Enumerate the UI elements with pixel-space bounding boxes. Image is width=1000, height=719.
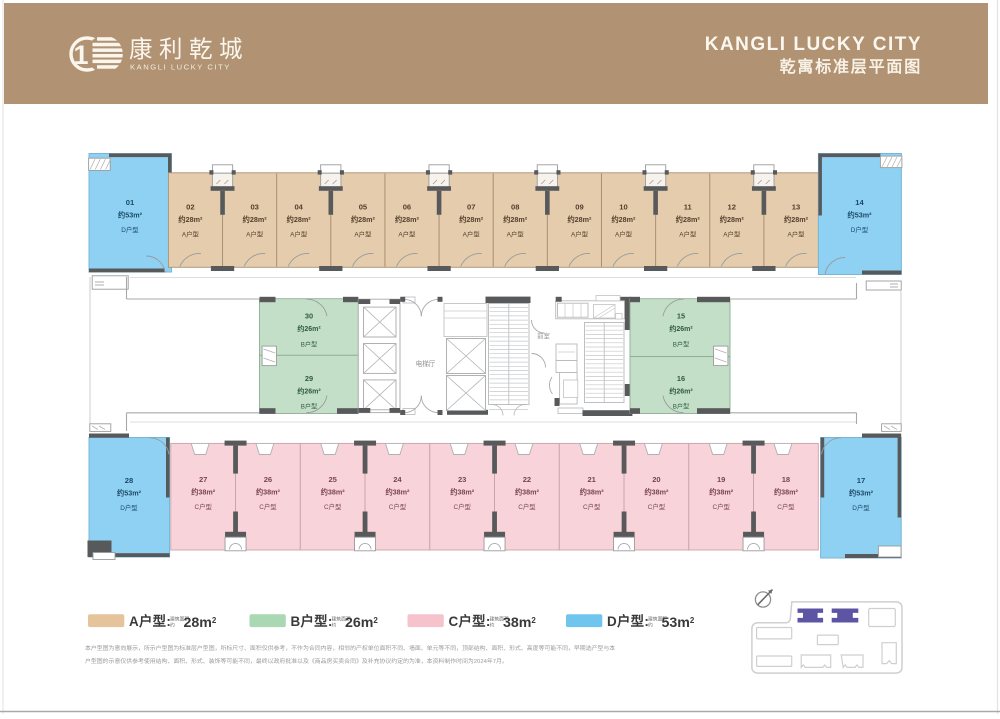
svg-text:D户型: D户型: [120, 503, 138, 512]
svg-text:06: 06: [403, 203, 411, 212]
svg-text:B户型: B户型: [673, 403, 690, 411]
svg-text:约38m²: 约38m²: [515, 488, 540, 497]
svg-text:约38m²: 约38m²: [256, 488, 281, 497]
svg-text:23: 23: [458, 475, 466, 484]
svg-text:约38m²: 约38m²: [385, 488, 410, 497]
svg-text:16: 16: [677, 374, 685, 383]
svg-text:26m2: 26m2: [345, 615, 378, 631]
svg-text:户型图的示意仅供参考使用结构、面积、形式、装饰等可能不同，最: 户型图的示意仅供参考使用结构、面积、形式、装饰等可能不同，最终以政府批准以及《商…: [85, 657, 508, 665]
svg-text:A户型: A户型: [246, 230, 264, 239]
svg-text:08: 08: [511, 203, 519, 212]
svg-text:约53m²: 约53m²: [117, 489, 142, 498]
svg-text:约38m²: 约38m²: [321, 488, 346, 497]
svg-text:13: 13: [792, 203, 800, 212]
svg-text:约38m²: 约38m²: [774, 488, 799, 497]
svg-text:15: 15: [677, 312, 685, 321]
svg-text:A户型: A户型: [507, 230, 525, 239]
svg-text:A户型: A户型: [571, 230, 589, 239]
svg-text:C户型: C户型: [389, 502, 407, 511]
svg-text:D户型: D户型: [852, 503, 870, 512]
svg-text:约28m²: 约28m²: [611, 215, 636, 224]
svg-text:19: 19: [717, 475, 725, 484]
svg-text:22: 22: [523, 475, 531, 484]
svg-text:A户型: A户型: [290, 230, 308, 239]
svg-text:04: 04: [294, 203, 303, 212]
svg-text:D户型:: D户型:: [607, 613, 649, 629]
svg-text:康利乾城: 康利乾城: [129, 36, 249, 62]
svg-text:约53m²: 约53m²: [118, 211, 143, 220]
svg-text:A户型:: A户型:: [129, 613, 171, 629]
svg-text:约28m²: 约28m²: [243, 215, 268, 224]
svg-text:25: 25: [328, 475, 337, 484]
svg-text:B户型: B户型: [673, 341, 690, 349]
svg-text:约38m²: 约38m²: [450, 488, 475, 497]
svg-text:约: 约: [170, 622, 175, 629]
svg-text:约38m²: 约38m²: [580, 488, 605, 497]
svg-text:C户型:: C户型:: [449, 613, 491, 629]
svg-text:KANGLI LUCKY CITY: KANGLI LUCKY CITY: [705, 34, 922, 55]
svg-text:B户型: B户型: [301, 403, 318, 411]
svg-text:A户型: A户型: [679, 230, 697, 239]
svg-text:C户型: C户型: [777, 502, 795, 511]
svg-text:乾寓标准层平面图: 乾寓标准层平面图: [780, 57, 922, 76]
svg-text:53m2: 53m2: [662, 615, 695, 631]
svg-text:C户型: C户型: [259, 502, 277, 511]
svg-text:约38m²: 约38m²: [644, 488, 669, 497]
svg-text:17: 17: [857, 476, 865, 485]
svg-text:27: 27: [199, 475, 207, 484]
svg-text:约: 约: [332, 622, 337, 629]
svg-text:约28m²: 约28m²: [178, 215, 203, 224]
svg-text:D户型: D户型: [121, 225, 139, 234]
svg-text:约38m²: 约38m²: [191, 488, 216, 497]
svg-text:A户型: A户型: [615, 230, 633, 239]
svg-text:约28m²: 约28m²: [567, 215, 592, 224]
svg-text:21: 21: [587, 475, 596, 484]
svg-text:约28m²: 约28m²: [287, 215, 312, 224]
svg-text:10: 10: [619, 203, 627, 212]
svg-text:C户型: C户型: [453, 502, 471, 511]
svg-text:C户型: C户型: [518, 502, 536, 511]
svg-text:28: 28: [125, 476, 133, 485]
svg-text:01: 01: [126, 198, 135, 207]
svg-text:24: 24: [393, 475, 402, 484]
svg-text:KANGLI LUCKY CITY: KANGLI LUCKY CITY: [130, 63, 231, 72]
svg-text:A户型: A户型: [354, 230, 372, 239]
svg-text:约38m²: 约38m²: [709, 488, 734, 497]
svg-text:B户型: B户型: [301, 341, 318, 349]
svg-text:A户型: A户型: [787, 230, 805, 239]
svg-text:电梯厅: 电梯厅: [416, 359, 436, 368]
svg-text:约26m²: 约26m²: [297, 324, 321, 333]
svg-text:C户型: C户型: [712, 502, 730, 511]
svg-text:约28m²: 约28m²: [351, 215, 376, 224]
svg-text:30: 30: [305, 312, 313, 321]
svg-text:28m2: 28m2: [184, 615, 217, 631]
svg-text:20: 20: [652, 475, 660, 484]
svg-text:约53m²: 约53m²: [848, 211, 873, 220]
svg-text:约28m²: 约28m²: [459, 215, 484, 224]
svg-text:本户型图为意向展示，所示户型图为标准层户型图，所标尺寸、面积: 本户型图为意向展示，所示户型图为标准层户型图，所标尺寸、面积仅供参考，不作为合同…: [85, 644, 615, 652]
svg-text:约53m²: 约53m²: [849, 489, 874, 498]
svg-text:约: 约: [648, 622, 653, 629]
svg-text:C户型: C户型: [583, 502, 601, 511]
svg-text:D户型: D户型: [851, 225, 869, 234]
svg-text:C户型: C户型: [324, 502, 342, 511]
svg-text:A户型: A户型: [398, 230, 416, 239]
svg-text:26: 26: [264, 475, 272, 484]
svg-text:约28m²: 约28m²: [784, 215, 809, 224]
svg-text:约28m²: 约28m²: [720, 215, 745, 224]
svg-text:07: 07: [467, 203, 475, 212]
svg-text:约26m²: 约26m²: [669, 324, 693, 333]
svg-text:B户型:: B户型:: [291, 613, 333, 629]
svg-text:C户型: C户型: [648, 502, 666, 511]
svg-text:约26m²: 约26m²: [297, 387, 321, 396]
svg-text:09: 09: [575, 203, 583, 212]
svg-text:12: 12: [728, 203, 736, 212]
svg-text:18: 18: [782, 475, 790, 484]
svg-text:C户型: C户型: [194, 502, 212, 511]
svg-text:38m2: 38m2: [503, 615, 536, 631]
svg-text:29: 29: [305, 374, 313, 383]
svg-text:1: 1: [73, 40, 88, 70]
svg-text:03: 03: [250, 203, 258, 212]
svg-text:A户型: A户型: [723, 230, 741, 239]
svg-text:02: 02: [186, 203, 194, 212]
svg-text:约28m²: 约28m²: [503, 215, 528, 224]
svg-text:A户型: A户型: [182, 230, 200, 239]
svg-text:约26m²: 约26m²: [669, 387, 693, 396]
svg-text:14: 14: [855, 198, 864, 207]
svg-text:A户型: A户型: [463, 230, 481, 239]
svg-text:约: 约: [490, 622, 495, 629]
svg-text:05: 05: [359, 203, 368, 212]
svg-text:约28m²: 约28m²: [395, 215, 420, 224]
svg-text:约28m²: 约28m²: [676, 215, 701, 224]
svg-text:11: 11: [684, 203, 693, 212]
